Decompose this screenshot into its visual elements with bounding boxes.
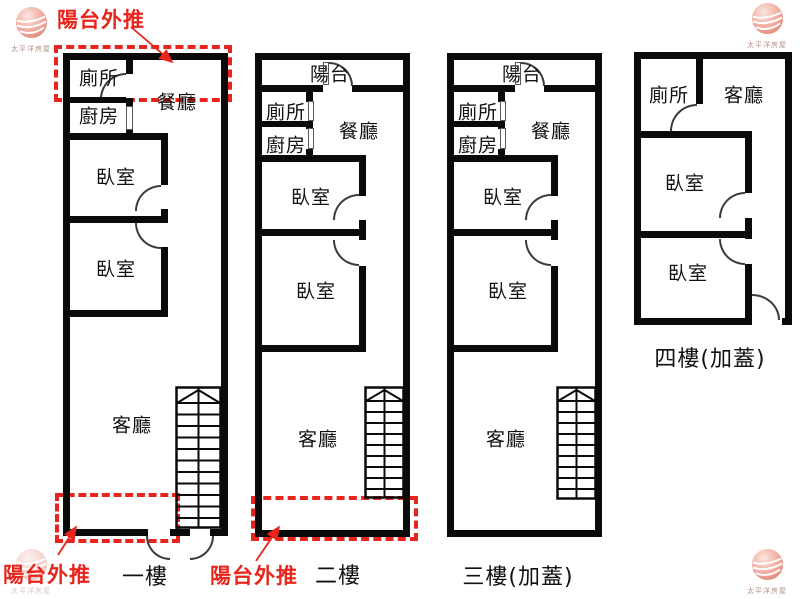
- wall-segment: [63, 53, 70, 536]
- room-label-living: 客廳: [724, 81, 764, 108]
- room-label-dining: 餐廳: [157, 88, 197, 115]
- wall-segment: [359, 266, 366, 345]
- wall-segment: [255, 530, 410, 537]
- door-arc: [333, 240, 359, 266]
- wall-segment: [782, 318, 792, 325]
- wall-segment: [447, 53, 454, 537]
- room-label-bedroom: 臥室: [296, 277, 336, 304]
- wall-segment: [262, 345, 366, 352]
- wall-segment: [454, 229, 551, 236]
- room-label-toilet: 廁所: [266, 98, 306, 125]
- staircase: [364, 386, 405, 499]
- door-arc: [525, 240, 551, 266]
- room-label-bedroom: 臥室: [488, 277, 528, 304]
- staircase: [175, 386, 222, 529]
- room-label-bedroom: 臥室: [668, 259, 708, 286]
- brand-name: 太平洋房屋: [5, 44, 57, 54]
- wall-segment: [210, 529, 228, 536]
- wall-segment: [359, 220, 366, 240]
- balcony-extension-annotation: 陽台外推: [57, 4, 145, 34]
- wall-segment: [126, 98, 133, 106]
- wall-segment: [634, 318, 752, 325]
- wall-segment: [161, 247, 168, 310]
- wall-segment: [551, 220, 558, 240]
- wall-segment: [63, 216, 168, 223]
- room-label-bedroom: 臥室: [96, 255, 136, 282]
- wall-segment: [63, 529, 148, 536]
- wall-segment: [262, 229, 359, 236]
- brand-name: 太平洋房屋: [741, 40, 793, 50]
- room-label-toilet: 廁所: [649, 81, 689, 108]
- wall-segment: [551, 266, 558, 345]
- door-arc: [190, 536, 214, 560]
- pacific-realty-wave-icon: [751, 2, 784, 35]
- floor-label-4f: 四樓(加蓋): [654, 341, 765, 373]
- floor-label-1f: 一樓: [122, 559, 168, 591]
- wall-segment: [454, 345, 558, 352]
- wall-segment: [634, 131, 752, 138]
- door-arc: [670, 104, 697, 131]
- floor-label-3f: 三樓(加蓋): [462, 559, 573, 591]
- door-arc: [752, 294, 780, 320]
- room-label-dining: 餐廳: [531, 117, 571, 144]
- door-leaf: [500, 101, 506, 121]
- door-arc: [135, 185, 161, 211]
- wall-segment: [551, 162, 558, 196]
- pacific-realty-logo: 太平洋房屋: [5, 6, 57, 54]
- room-label-living: 客廳: [486, 425, 526, 452]
- wall-segment: [63, 53, 228, 60]
- wall-segment: [170, 529, 190, 536]
- door-arc: [525, 194, 551, 220]
- wall-segment: [634, 52, 792, 59]
- room-label-living: 客廳: [298, 425, 338, 452]
- door-arc: [146, 536, 170, 560]
- staircase: [556, 386, 597, 500]
- room-label-kitchen: 廚房: [79, 102, 119, 129]
- floor-plan-canvas: 太平洋房屋 太平洋房屋 太平洋房屋 太平洋房屋 廁所 廚房 餐廳 臥室: [0, 0, 800, 599]
- wall-segment: [641, 231, 752, 238]
- door-leaf: [500, 128, 506, 149]
- balcony-extension-annotation: 陽台外推: [3, 559, 91, 589]
- pacific-realty-wave-icon: [751, 548, 784, 581]
- room-label-balcony: 陽台: [502, 60, 542, 87]
- wall-segment: [785, 52, 792, 325]
- room-label-bedroom: 臥室: [665, 169, 705, 196]
- wall-segment: [63, 133, 168, 140]
- room-label-living: 客廳: [112, 411, 152, 438]
- pacific-realty-logo: 太平洋房屋: [741, 2, 793, 50]
- balcony-extension-annotation: 陽台外推: [210, 560, 298, 590]
- wall-segment: [447, 530, 602, 537]
- room-label-bedroom: 臥室: [483, 183, 523, 210]
- wall-segment: [634, 52, 641, 325]
- wall-segment: [745, 138, 752, 193]
- room-label-bedroom: 臥室: [291, 183, 331, 210]
- wall-segment: [161, 140, 168, 185]
- room-label-bedroom: 臥室: [96, 163, 136, 190]
- door-arc: [719, 192, 745, 218]
- pacific-realty-wave-icon: [15, 6, 48, 39]
- door-arc: [135, 223, 161, 249]
- floor-label-2f: 二樓: [315, 558, 361, 590]
- wall-segment: [352, 85, 403, 92]
- door-leaf: [308, 128, 314, 149]
- door-leaf: [126, 106, 133, 130]
- wall-segment: [255, 53, 262, 537]
- pacific-realty-logo: 太平洋房屋: [741, 548, 793, 596]
- wall-segment: [544, 85, 595, 92]
- room-label-kitchen: 廚房: [458, 131, 498, 158]
- wall-segment: [126, 60, 133, 74]
- room-label-toilet: 廁所: [458, 98, 498, 125]
- wall-segment: [63, 310, 168, 317]
- wall-segment: [745, 264, 752, 318]
- wall-segment: [696, 59, 703, 104]
- door-arc: [719, 239, 745, 265]
- wall-segment: [359, 162, 366, 196]
- room-label-balcony: 陽台: [310, 60, 350, 87]
- door-arc: [333, 194, 359, 220]
- door-leaf: [308, 101, 314, 121]
- room-label-dining: 餐廳: [339, 117, 379, 144]
- room-label-kitchen: 廚房: [266, 131, 306, 158]
- brand-name: 太平洋房屋: [741, 586, 793, 596]
- wall-segment: [221, 53, 228, 536]
- room-label-toilet: 廁所: [79, 64, 119, 91]
